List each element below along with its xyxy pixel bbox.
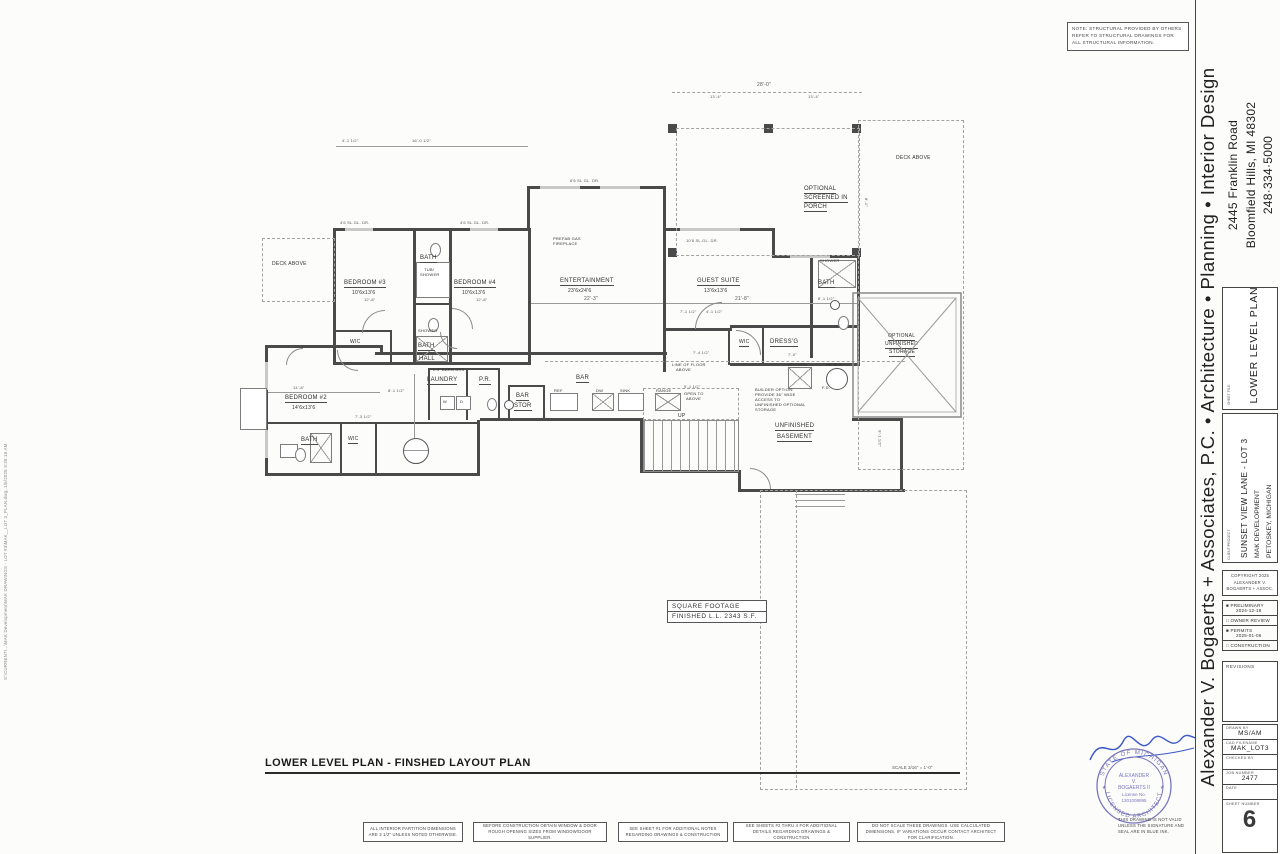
door-swing-arc <box>286 348 303 365</box>
wall-segment <box>268 422 478 424</box>
field-value: MAK_LOT3 <box>1226 745 1274 752</box>
dimension-label: 16'-0 1/2" <box>412 138 431 143</box>
dimension-label: 4'6 SL.GL. DR. <box>340 220 370 225</box>
room-label: 14'6x13'6 <box>292 406 315 411</box>
copyright-box: COPYRIGHT 2025 ALEXANDER V. BOGAERTS + A… <box>1222 570 1278 596</box>
structural-note: NOTE: STRUCTURAL PROVIDED BY OTHERS. REF… <box>1067 22 1189 51</box>
deck-above-outline <box>262 238 335 302</box>
titleblock-field: DRAWN BYMS/AM <box>1223 725 1277 740</box>
window-opening <box>600 186 640 189</box>
room-label: 2-3' BARN DRS <box>433 368 465 372</box>
dimension-label: 7'-4 1/2" <box>693 350 709 355</box>
milestone-checkbox: ■ <box>1226 628 1229 633</box>
room-label: W <box>443 400 447 404</box>
milestone-checkbox: ■ <box>1226 603 1229 608</box>
door-swing-arc <box>452 308 473 329</box>
architect-seal: STATE OF MICHIGAN LICENSED ARCHITECT ALE… <box>1094 746 1174 826</box>
room-label: HE FURN <box>788 363 808 367</box>
room-label: HALL <box>419 356 435 364</box>
room-label: WIC <box>739 340 749 347</box>
room-label: 23'6x24'6 <box>568 289 591 294</box>
wall-segment <box>390 330 392 364</box>
field-value <box>1226 760 1274 767</box>
room-label: D <box>460 400 463 404</box>
milestone-row: ■ PERMITS2025-01-06 <box>1222 626 1278 641</box>
room-label: BAR <box>576 375 589 383</box>
wall-segment <box>428 368 430 420</box>
dimension-line <box>672 92 862 93</box>
dimension-line <box>795 494 845 495</box>
svg-text:BOGAERTS II: BOGAERTS II <box>1118 785 1150 791</box>
wall-segment <box>543 385 545 420</box>
room-label: SCREENED IN <box>804 195 848 203</box>
wall-segment <box>738 470 741 491</box>
room-label: P.R. <box>479 377 491 385</box>
room-label: BAR <box>516 393 529 401</box>
room-label: DECK ABOVE <box>896 156 931 161</box>
room-label: STORAGE <box>755 408 776 412</box>
dimension-line <box>268 392 380 393</box>
sheet-file-title: LOWER LEVEL PLAN <box>1248 286 1260 404</box>
svg-text:1301008995: 1301008995 <box>1121 798 1147 803</box>
door-swing-arc <box>750 468 771 489</box>
wall-segment <box>528 228 531 364</box>
room-label: UNFINISHED <box>775 423 814 431</box>
room-label: FIREPLACE <box>553 242 577 246</box>
detail-marker-line <box>404 450 428 451</box>
room-label: WIC <box>348 437 358 444</box>
room-label: BATH <box>818 280 835 288</box>
general-note: ALL INTERIOR PARTITION DIMENSIONS ARE 3 … <box>363 822 463 842</box>
room-label: ABOVE <box>676 368 691 372</box>
client-project-label: CLIENT/PROJECT <box>1227 529 1231 560</box>
dimension-line <box>795 506 845 507</box>
wall-segment <box>728 328 730 365</box>
room-label: SINK <box>620 389 630 393</box>
dimension-label: 4'-1 1/2" <box>706 309 722 314</box>
blue-ink-note: THIS DRAWING IS NOT VALID UNLESS THE SIG… <box>1118 817 1194 835</box>
dimension-line <box>414 374 415 440</box>
door-swing-arc <box>337 350 358 371</box>
titleblock-field: DATE <box>1223 785 1277 800</box>
svg-text:★: ★ <box>1102 785 1107 791</box>
field-value: MS/AM <box>1226 730 1274 737</box>
room-label: PORCH <box>804 204 827 212</box>
wall-segment <box>663 186 666 372</box>
copyright-line2: ALEXANDER V. <box>1223 580 1277 587</box>
wall-segment <box>810 258 813 358</box>
wall-segment <box>375 424 377 475</box>
room-label: 13'6x13'6 <box>704 289 727 294</box>
fixture-x <box>655 393 681 411</box>
dimension-label: 12'-8" <box>476 297 487 302</box>
dimension-label: 10'6 SL.GL. DR. <box>686 238 718 243</box>
dimension-label: 14'-8" <box>293 385 304 390</box>
round-fixture <box>830 300 840 310</box>
window-opening <box>470 228 498 231</box>
fixture-x <box>592 393 614 411</box>
room-label: WIC <box>350 340 360 347</box>
dimension-label: 13'-4" <box>808 94 819 99</box>
fixture-box <box>240 388 267 430</box>
wall-segment <box>498 368 500 420</box>
fixture-box <box>618 393 644 411</box>
milestone-date: 2024-12-18 <box>1226 608 1274 613</box>
room-label: UP <box>678 414 685 419</box>
room-label: ENTERTAINMENT <box>560 278 614 286</box>
detail-marker <box>403 438 429 464</box>
plan-title: LOWER LEVEL PLAN - FINSHED LAYOUT PLAN <box>265 757 531 769</box>
general-note: DO NOT SCALE THESE DRAWINGS. USE CALCULA… <box>857 822 1005 842</box>
wall-segment <box>762 328 764 365</box>
milestone-label: OWNER REVIEW <box>1230 618 1269 623</box>
room-label: BEDROOM #4 <box>454 280 496 288</box>
room-label: LAUNDRY <box>427 377 457 385</box>
dimension-line <box>795 500 845 501</box>
window-opening <box>265 430 268 458</box>
dimension-label: 7'-1 1/2" <box>680 309 696 314</box>
svg-text:License No.: License No. <box>1122 792 1146 797</box>
wall-segment <box>413 303 452 305</box>
titleblock-field: JOB NUMBER2477 <box>1223 770 1277 785</box>
milestone-row: ■ PRELIMINARY2024-12-18 <box>1222 601 1278 616</box>
room-label: BASEMENT <box>777 434 812 442</box>
general-note: BEFORE CONSTRUCTION OBTAIN WINDOW & DOOR… <box>473 822 607 842</box>
drawing-sheet: DECK ABOVEBEDROOM #310'6x13'6BATHTUB/SHO… <box>0 0 1280 854</box>
dimension-label: 13'-4" <box>710 94 721 99</box>
fixture-x <box>788 367 812 389</box>
dimension-label: 28'-0" <box>757 82 771 88</box>
revisions-label: REVISIONS <box>1223 662 1277 671</box>
wall-segment <box>480 418 642 421</box>
wall-segment <box>477 420 480 476</box>
dimension-label: 7'-3 1/2" <box>355 414 371 419</box>
room-label: BATH <box>418 343 435 351</box>
toilet-fixture <box>838 316 849 330</box>
milestones-box: ■ PRELIMINARY2024-12-18□ OWNER REVIEW■ P… <box>1222 600 1278 651</box>
firm-address: 2445 Franklin Road Bloomfield Hills, MI … <box>1225 60 1278 290</box>
project-location: PETOSKEY, MICHIGAN <box>1266 418 1273 558</box>
fixture-box <box>550 393 578 411</box>
line-of-floor-above <box>545 361 905 362</box>
dimension-label: 4'-1 1/2" <box>342 138 358 143</box>
milestone-label: CONSTRUCTION <box>1230 643 1269 648</box>
stairs <box>643 420 739 472</box>
dimension-label: 8'-1" <box>864 198 869 207</box>
dimension-label: 21'-8" <box>735 296 749 302</box>
dimension-label: 22'-3" <box>584 296 598 302</box>
milestone-date: 2025-01-06 <box>1226 633 1274 638</box>
round-fixture <box>504 400 514 410</box>
room-label: DECK ABOVE <box>272 262 307 267</box>
address-line1: 2445 Franklin Road <box>1225 60 1243 290</box>
firm-phone: 248·334·5000 <box>1260 60 1278 290</box>
room-label: ABOVE <box>686 397 701 401</box>
dimension-label: 4'6 SL.GL. DR. <box>460 220 490 225</box>
room-label: REF <box>554 389 563 393</box>
titleblock-field: CHECKED BY <box>1223 755 1277 770</box>
milestone-row: □ CONSTRUCTION <box>1222 641 1278 651</box>
room-label: SHOWER <box>418 329 438 333</box>
milestone-checkbox: □ <box>1226 618 1229 623</box>
dimension-label: 8'6 SL.GL. DR. <box>570 178 600 183</box>
fixture-box <box>456 396 471 410</box>
general-note: SEE SHEET #1 FOR ADDITIONAL NOTES REGARD… <box>618 822 728 842</box>
room-label: 10'6x13'6 <box>352 291 375 296</box>
room-label: BEDROOM #2 <box>285 395 327 403</box>
wall-segment <box>265 473 480 476</box>
titleblock-field: CAD FILENAMEMAK_LOT3 <box>1223 740 1277 755</box>
window-opening <box>540 186 580 189</box>
room-label: SHOWER <box>420 273 440 277</box>
copyright-line1: COPYRIGHT 2025 <box>1223 573 1277 580</box>
patio-outline <box>760 490 967 790</box>
titleblock-fields: DRAWN BYMS/AMCAD FILENAMEMAK_LOT3CHECKED… <box>1222 724 1278 853</box>
firm-name: Alexander V. Bogaerts + Associates, P.C.… <box>1197 16 1219 838</box>
copyright-line3: BOGAERTS + ASSOC. <box>1223 586 1277 593</box>
dimension-label: 8'-1 1/2" <box>818 296 834 301</box>
room-label: BATH <box>420 255 437 263</box>
room-label: 10'6x13'6 <box>462 291 485 296</box>
project-developer: MAK DEVELOPMENT <box>1254 418 1261 558</box>
wall-segment <box>340 424 342 475</box>
window-opening <box>265 362 268 390</box>
room-label: F.D. <box>822 386 830 390</box>
square-footage-value: FINISHED L.L. 2343 S.F. <box>668 612 766 622</box>
wall-segment <box>527 189 530 230</box>
general-note: SEE SHEETS #2 THRU 4 FOR ADDITIONAL DETA… <box>733 822 850 842</box>
dimension-label: 7'-0" <box>788 352 797 357</box>
project-name: SUNSET VIEW LANE - LOT 3 <box>1240 418 1249 558</box>
room-label: BEDROOM #3 <box>344 280 386 288</box>
room-label: OPTIONAL <box>804 186 836 194</box>
revisions-box: REVISIONS <box>1222 661 1278 722</box>
room-label: RANGE <box>656 389 671 393</box>
wall-segment <box>508 385 545 387</box>
square-footage-box: SQUARE FOOTAGE FINISHED L.L. 2343 S.F. <box>667 600 767 623</box>
room-label: GUEST SUITE <box>697 278 740 286</box>
address-line2: Bloomfield Hills, MI 48302 <box>1243 60 1261 290</box>
dimension-label: 8'-1 1/2" <box>878 430 883 446</box>
wall-segment <box>265 345 383 348</box>
door-swing-arc <box>695 302 722 329</box>
title-underline <box>265 772 960 774</box>
sheet-number: 6 <box>1223 806 1277 834</box>
dimension-line <box>666 303 857 304</box>
scale-note: SCALE 3/16" = 1'-0" <box>892 765 932 770</box>
patio-joint-line <box>796 490 797 788</box>
dimension-line <box>531 303 663 304</box>
sheet-file-label: SHEET FILE <box>1227 384 1231 405</box>
window-opening <box>345 228 373 231</box>
dimension-label: 8'-1 1/2" <box>388 388 404 393</box>
room-label: BATH <box>301 437 318 445</box>
dimension-label: 12'-8" <box>364 297 375 302</box>
svg-text:★: ★ <box>1160 785 1165 791</box>
door-swing-arc <box>362 310 385 333</box>
room-label: STOR <box>514 403 532 411</box>
dimension-label: 5'-1 1/2" <box>684 384 700 389</box>
toilet-fixture <box>487 398 497 411</box>
file-path-text: S:\CURRENT\...\MAK Development\MAK DRAWI… <box>3 380 8 680</box>
room-label: HE W.H. <box>826 363 843 367</box>
field-value <box>1226 790 1274 797</box>
field-value: 2477 <box>1226 775 1274 782</box>
room-label: DRESS'G <box>770 339 798 347</box>
wall-segment <box>466 368 468 420</box>
room-label: SHOWER <box>820 259 840 263</box>
milestone-row: □ OWNER REVIEW <box>1222 616 1278 626</box>
dimension-line <box>336 146 528 147</box>
square-footage-title: SQUARE FOOTAGE <box>668 601 766 612</box>
room-label: DW <box>596 389 603 393</box>
milestone-checkbox: □ <box>1226 643 1229 648</box>
storage-x-pattern <box>852 292 962 418</box>
toilet-fixture <box>295 448 306 462</box>
